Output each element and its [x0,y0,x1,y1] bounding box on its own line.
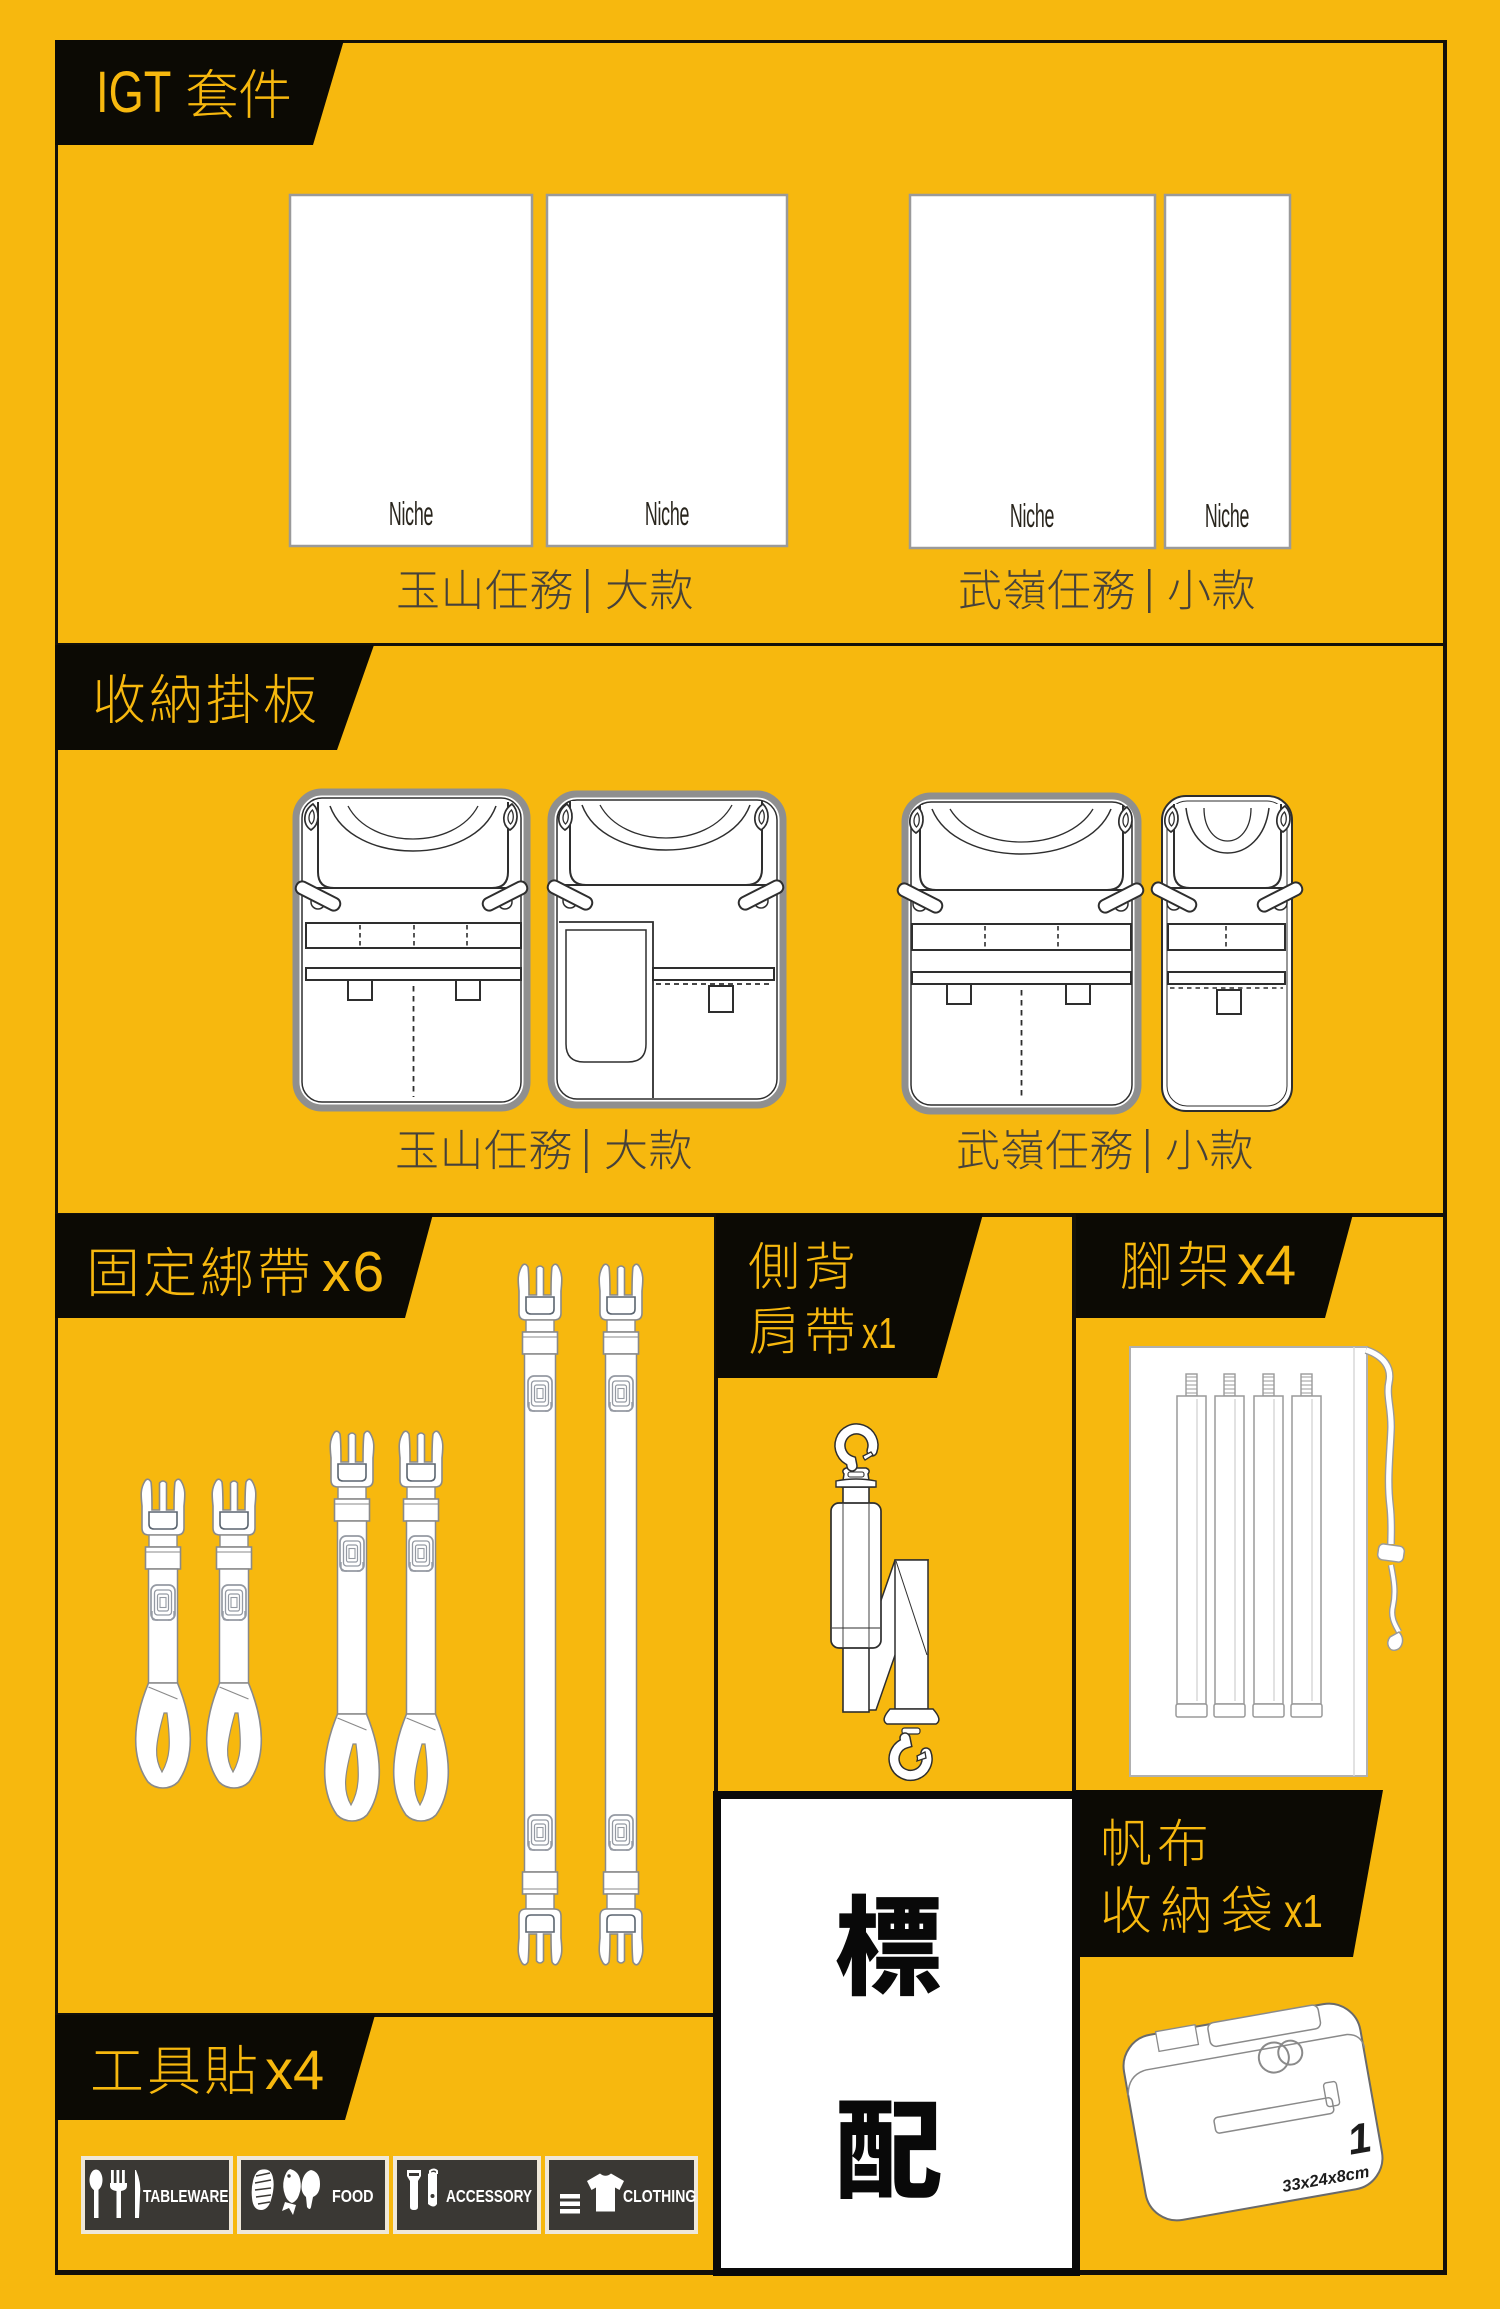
svg-text:Niche: Niche [1010,497,1054,534]
svg-text:Niche: Niche [389,495,433,532]
svg-text:x4: x4 [265,2038,324,2101]
svg-text:TABLEWARE: TABLEWARE [143,2187,229,2206]
svg-text:FOOD: FOOD [332,2187,374,2207]
svg-text:x6: x6 [322,1240,386,1304]
svg-text:IGT: IGT [96,61,171,126]
svg-text:x1: x1 [862,1309,896,1358]
svg-text:CLOTHING: CLOTHING [623,2186,696,2206]
svg-text:ACCESSORY: ACCESSORY [446,2187,532,2206]
svg-text:Niche: Niche [645,495,689,532]
svg-text:Niche: Niche [1205,497,1249,534]
svg-text:x1: x1 [1284,1885,1323,1937]
svg-text:x4: x4 [1237,1233,1296,1296]
